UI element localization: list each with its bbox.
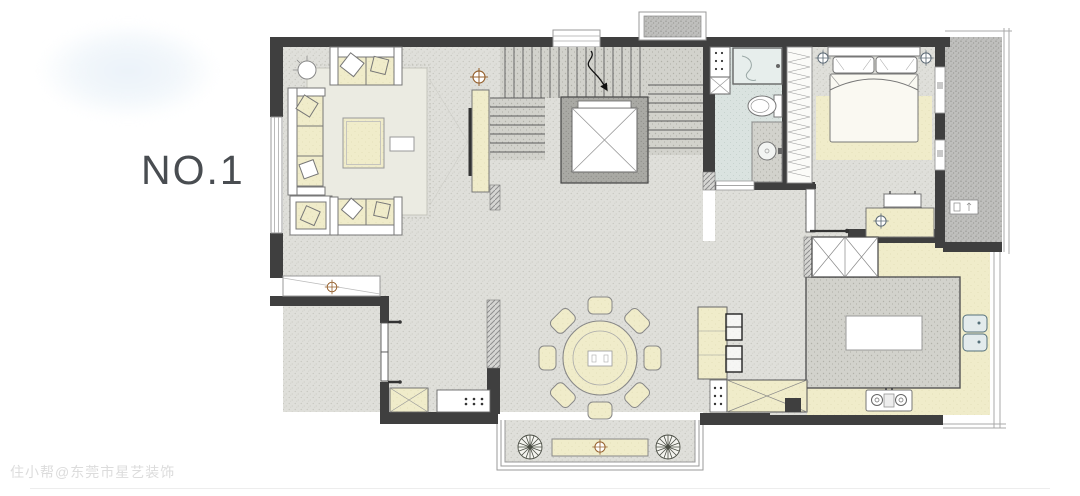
faucet — [778, 148, 782, 154]
counter-top — [878, 243, 945, 277]
table-centerpiece — [588, 351, 612, 366]
headboard — [828, 47, 920, 56]
plant-left — [518, 435, 542, 459]
shoe-cabinet — [390, 388, 428, 412]
floorplan-drawing — [0, 0, 1080, 496]
bathroom-door — [716, 181, 754, 190]
tv-cabinet — [469, 90, 490, 192]
throw-pillow — [374, 202, 391, 219]
shower-head — [776, 64, 780, 68]
fridge — [812, 237, 878, 277]
side-table — [390, 137, 414, 151]
console-cabinet — [437, 390, 490, 412]
watermark-text: 住小帮@东莞市星艺装饰 — [10, 462, 175, 482]
throw-pillow — [371, 56, 389, 74]
sofa-corner-armchair — [290, 196, 332, 235]
toilet — [748, 95, 782, 117]
ac-platform — [639, 12, 706, 40]
sofa-left — [288, 88, 325, 195]
stair-void — [561, 97, 648, 183]
tv — [469, 108, 472, 176]
pillow — [876, 57, 917, 73]
bathroom-shelf-unit — [710, 47, 730, 77]
plant-right — [656, 435, 680, 459]
balcony — [950, 200, 978, 214]
bed — [828, 47, 920, 142]
shower — [733, 48, 782, 84]
pillow — [833, 57, 874, 73]
door-leaf — [806, 189, 815, 232]
bench — [884, 194, 921, 207]
hall-floor — [715, 190, 848, 241]
floorplan-canvas: NO.1 — [0, 0, 1080, 496]
door-leaf — [381, 352, 388, 381]
bottom-border-line — [30, 488, 1050, 489]
sofa-bottom — [330, 197, 402, 235]
wardrobe — [787, 47, 812, 183]
vanity — [752, 122, 782, 182]
living-room-left-window — [271, 117, 282, 233]
sofa-top — [330, 47, 402, 85]
column — [785, 398, 801, 412]
cooktop — [866, 388, 912, 411]
stair-top-window — [553, 30, 600, 47]
coffee-table — [343, 118, 384, 168]
island-counter-top — [846, 316, 922, 350]
storage-cabinet — [710, 380, 807, 412]
door-leaf — [381, 323, 388, 352]
bathroom-cabinet — [710, 77, 730, 94]
